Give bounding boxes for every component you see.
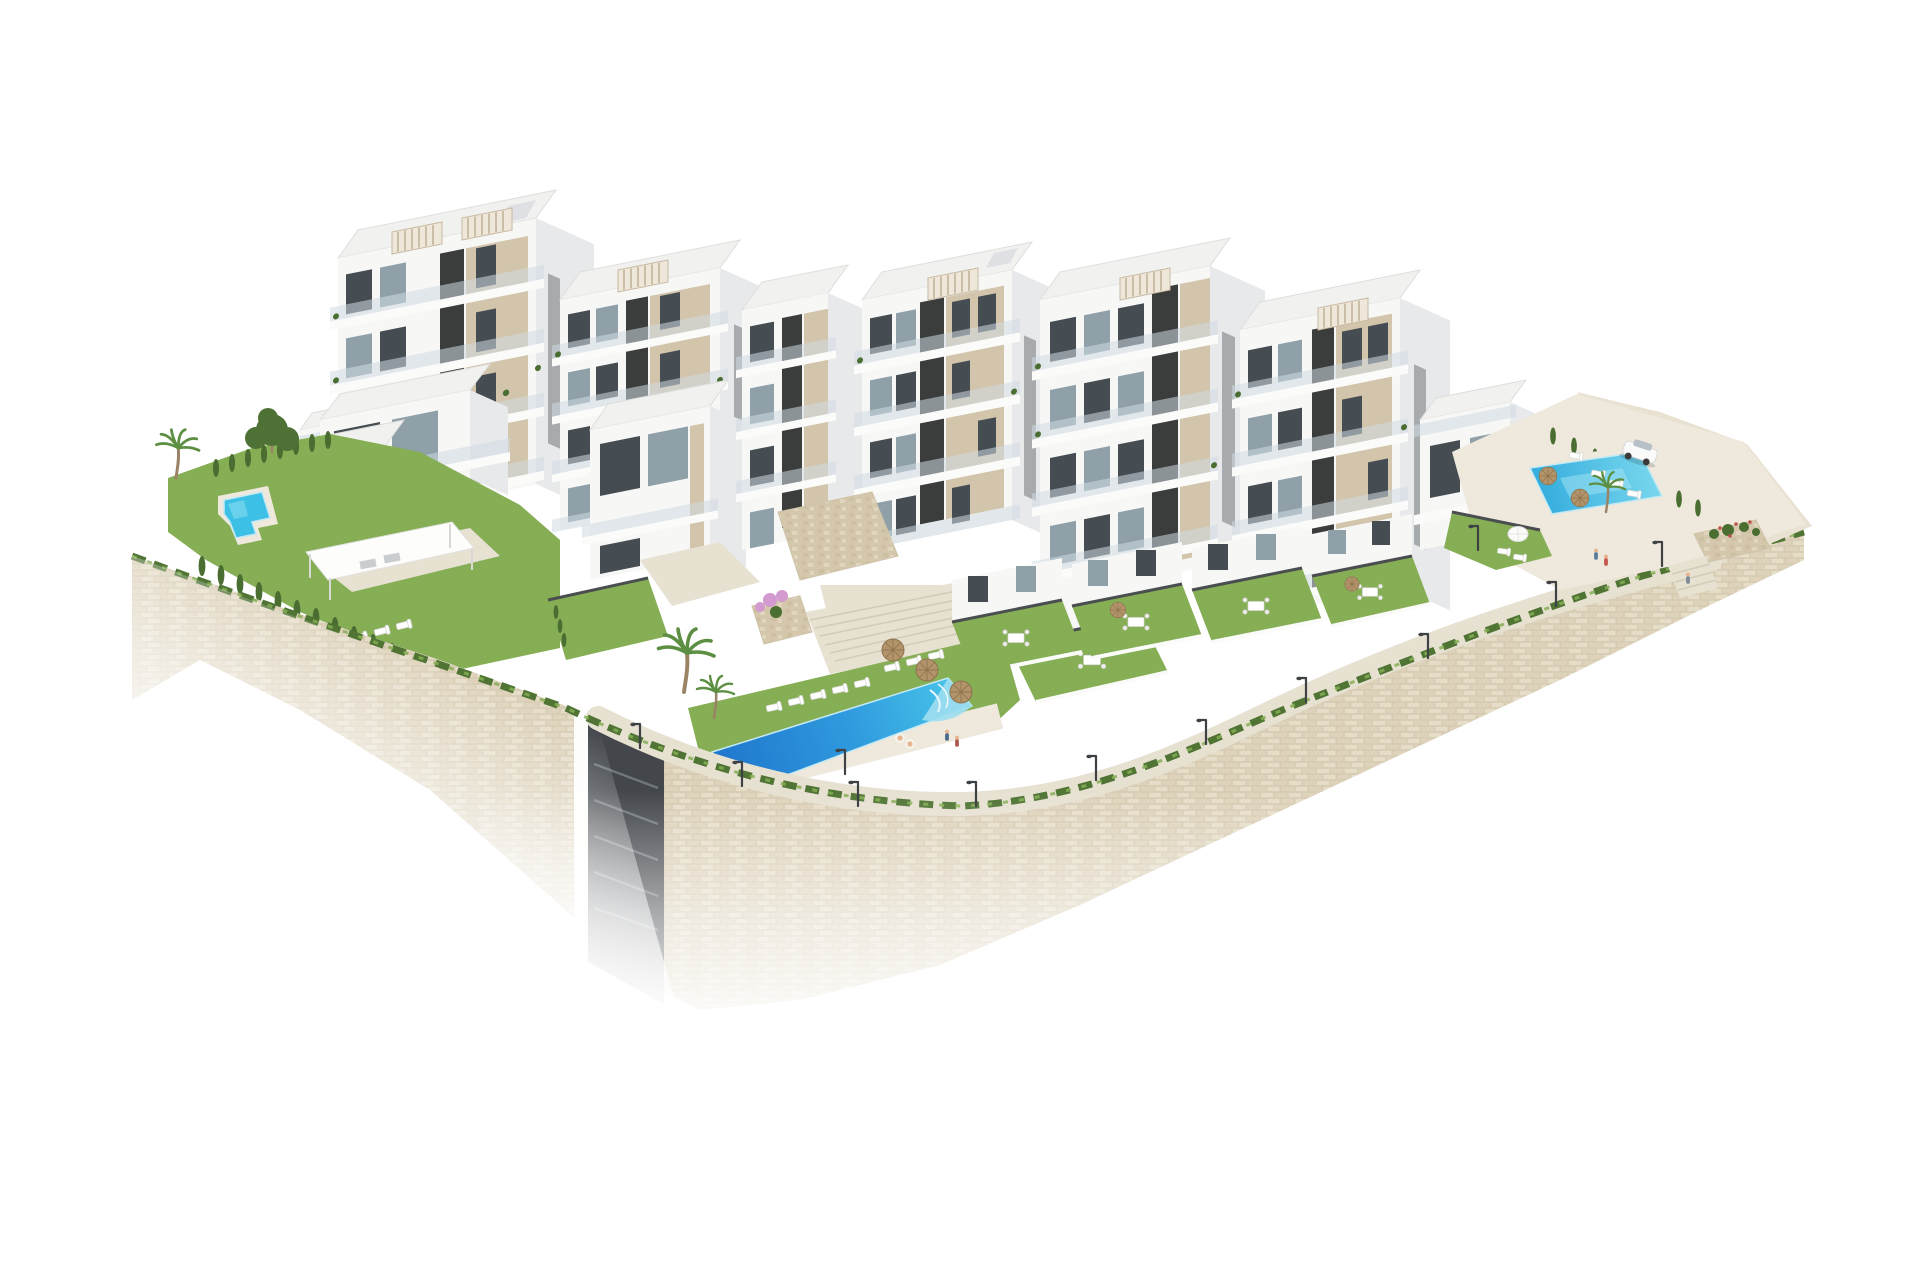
render-stage [0, 0, 1920, 1280]
aerial-render [0, 0, 1920, 1280]
center-apartment-block-2 [854, 242, 1060, 552]
bottom-fade-overlay [480, 740, 1920, 1080]
